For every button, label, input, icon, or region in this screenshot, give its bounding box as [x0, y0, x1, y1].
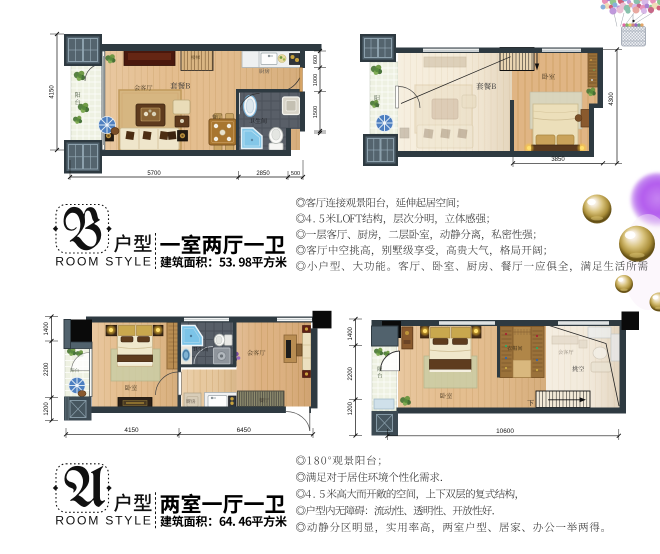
svg-text:1200: 1200 — [44, 402, 50, 416]
svg-text:6450: 6450 — [237, 427, 252, 434]
svg-text:ROOM STYLE: ROOM STYLE — [55, 514, 152, 528]
svg-text:500: 500 — [291, 171, 300, 177]
svg-text:4300: 4300 — [609, 92, 615, 106]
svg-text:ROOM STYLE: ROOM STYLE — [55, 254, 152, 268]
svg-text:1500: 1500 — [313, 106, 319, 118]
svg-text:3850: 3850 — [551, 157, 565, 163]
svg-text:2200: 2200 — [348, 366, 354, 380]
svg-text:1000: 1000 — [313, 74, 319, 86]
svg-text:2850: 2850 — [256, 171, 270, 177]
svg-text:10600: 10600 — [496, 428, 514, 435]
svg-text:1400: 1400 — [44, 321, 50, 335]
svg-text:4150: 4150 — [50, 85, 56, 99]
svg-text:2200: 2200 — [44, 362, 50, 376]
svg-text:600: 600 — [313, 55, 319, 64]
svg-text:4150: 4150 — [124, 427, 139, 434]
svg-text:1200: 1200 — [348, 401, 354, 415]
svg-text:5700: 5700 — [147, 171, 161, 177]
svg-text:1400: 1400 — [348, 326, 354, 340]
